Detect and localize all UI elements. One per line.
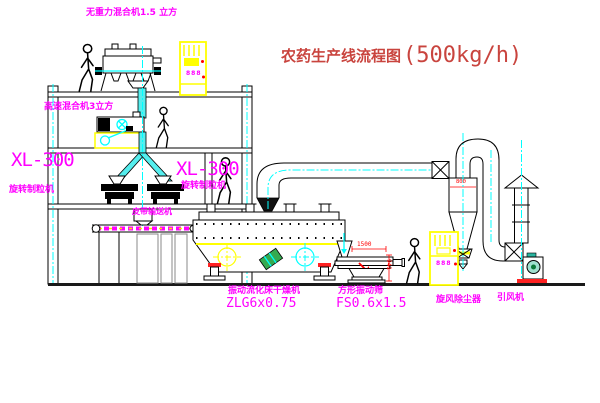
granulator-right	[147, 176, 184, 204]
fan-damper-icon	[505, 243, 523, 261]
dimension-cyclone-diameter: 800	[456, 180, 466, 186]
sieve-name-label: 方形振动筛	[338, 287, 383, 296]
inlet-damper-icon	[432, 162, 449, 179]
dimension-sieve-length: 1500	[357, 242, 371, 248]
support-piers	[137, 234, 187, 283]
worker-figure	[407, 239, 420, 283]
belt-conveyor-label: 皮带输送机	[132, 208, 172, 216]
dryer-model-label: ZLG6x0.75	[226, 297, 296, 310]
title-text: 农药生产线流程图	[281, 45, 401, 66]
high-speed-mixer-label: 高速混合机3立方	[44, 103, 113, 112]
worker-figure	[79, 44, 93, 91]
dryer-name-label: 振动流化床干燥机	[228, 287, 300, 296]
sieve-model-label: FS0.6x1.5	[336, 297, 406, 310]
cabinet-right-display: 888	[436, 261, 452, 267]
granulator-name-right: 旋转制粒机	[181, 182, 226, 191]
high-speed-mixer	[95, 112, 146, 153]
flow-diagram-canvas: 农药生产线流程图 (500kg/h) 无重力混合机1.5 立方 高速混合机3立方…	[0, 0, 600, 403]
cabinet-top-display: 888	[186, 71, 202, 77]
diagram-title: 农药生产线流程图 (500kg/h)	[281, 43, 522, 68]
control-cabinet-right	[430, 232, 458, 285]
granulator-model-left: XL-300	[11, 151, 74, 170]
dimension-sieve-height: 941	[385, 259, 391, 270]
fluid-bed-dryer	[193, 204, 345, 280]
granulator-model-right: XL-300	[176, 160, 239, 179]
ground-line	[48, 283, 585, 286]
gravity-mixer-label: 无重力混合机1.5 立方	[86, 9, 177, 18]
granulator-left	[101, 176, 138, 204]
worker-figure	[156, 107, 168, 147]
granulator-name-left: 旋转制粒机	[9, 186, 54, 195]
control-cabinet-top	[180, 42, 206, 95]
fan-label: 引风机	[497, 294, 524, 303]
title-capacity: (500kg/h)	[403, 43, 522, 68]
cyclone-label: 旋风除尘器	[436, 296, 481, 305]
